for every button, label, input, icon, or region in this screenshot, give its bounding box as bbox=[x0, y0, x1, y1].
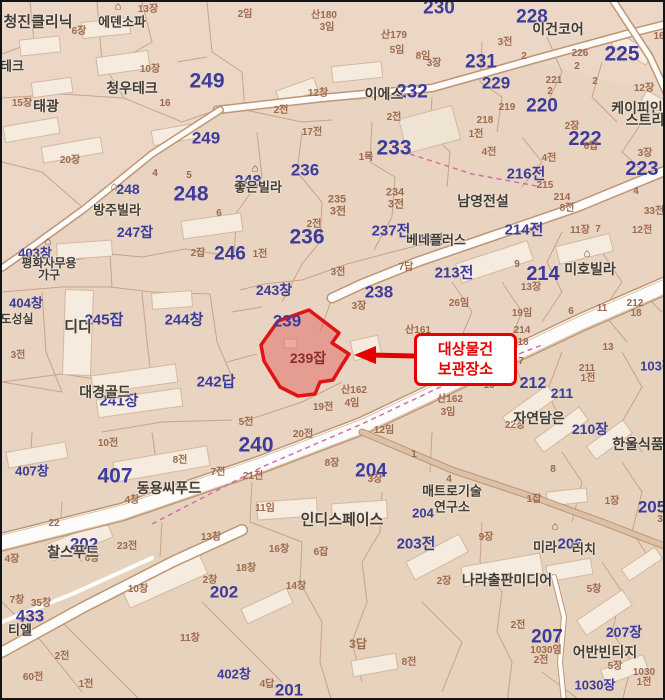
callout-line2: 보관장소 bbox=[438, 361, 493, 379]
annotation-callout: 대상물건 보관장소 bbox=[414, 333, 517, 386]
arrow-icon bbox=[354, 346, 414, 364]
callout-line1: 대상물건 bbox=[438, 341, 493, 359]
map-canvas[interactable]: 249249248248248246247잡245잡244창243창240241… bbox=[0, 0, 665, 700]
annotation-arrow-layer bbox=[2, 2, 665, 700]
